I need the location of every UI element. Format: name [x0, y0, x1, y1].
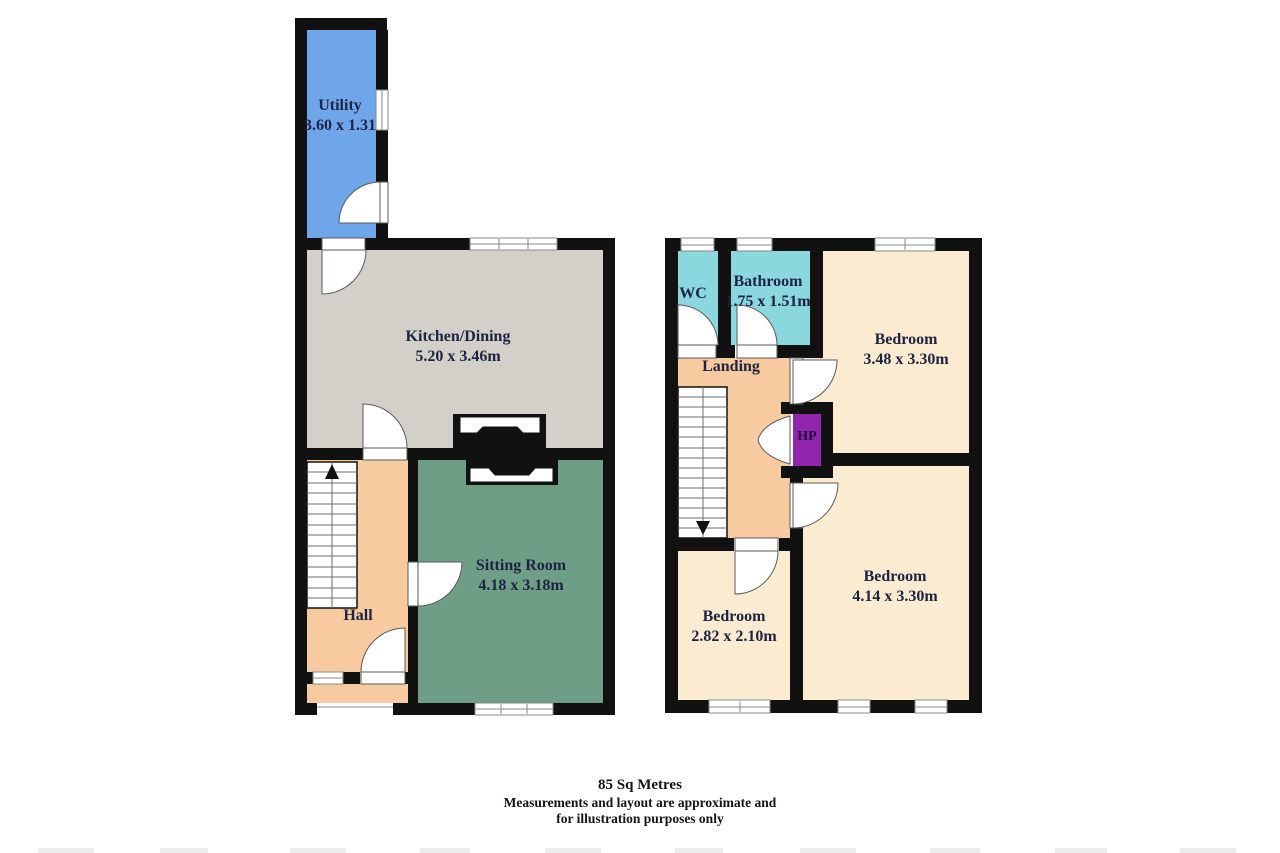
room-dims: 1.75 x 1.51m: [698, 292, 838, 312]
room-label-bedroom-back: Bedroom 4.14 x 3.30m: [795, 567, 995, 607]
door-opening: [361, 672, 405, 684]
room-dims: 4.14 x 3.30m: [795, 587, 995, 607]
room-dims: 5.20 x 3.46m: [358, 347, 558, 367]
room-label-utility: Utility 3.60 x 1.31: [295, 96, 385, 136]
photo-strip-edge: [38, 848, 1236, 853]
room-label-kitchen: Kitchen/Dining 5.20 x 3.46m: [358, 327, 558, 367]
fireplace: [453, 414, 558, 485]
room-name: Bedroom: [703, 608, 766, 625]
room-label-sitting: Sitting Room 4.18 x 3.18m: [421, 556, 621, 596]
room-name: Sitting Room: [476, 557, 566, 574]
room-label-hall: Hall: [320, 606, 396, 626]
room-dims: 3.48 x 3.30m: [806, 350, 1006, 370]
door-opening: [322, 238, 365, 250]
room-label-bedroom-front: Bedroom 3.48 x 3.30m: [806, 330, 1006, 370]
floorplan-page: Utility 3.60 x 1.31 Kitchen/Dining 5.20 …: [0, 0, 1280, 853]
room-label-bathroom: Bathroom 1.75 x 1.51m: [698, 272, 838, 312]
room-label-landing: Landing: [673, 357, 789, 377]
room-name: Bedroom: [864, 568, 927, 585]
room-name: Hall: [343, 607, 372, 624]
room-name: Utility: [318, 97, 362, 114]
room-label-bedroom-small: Bedroom 2.82 x 2.10m: [654, 607, 814, 647]
room-dims: 4.18 x 3.18m: [421, 576, 621, 596]
room-name: Landing: [702, 358, 760, 375]
door-opening: [408, 562, 418, 606]
disclaimer-line-1: Measurements and layout are approximate …: [340, 795, 940, 811]
total-area-text: 85 Sq Metres: [340, 776, 940, 795]
room-name: Bathroom: [733, 273, 802, 290]
room-name: Bedroom: [875, 331, 938, 348]
disclaimer-line-2: for illustration purposes only: [340, 811, 940, 827]
staircase-first: [678, 387, 727, 538]
footer-notes: 85 Sq Metres Measurements and layout are…: [340, 776, 940, 827]
staircase-ground: [307, 462, 357, 608]
room-label-hot-press: HP: [792, 429, 822, 445]
room-name: HP: [797, 429, 816, 444]
room-dims: 3.60 x 1.31: [295, 116, 385, 136]
floorplan-drawing: [0, 0, 1280, 853]
door-opening: [735, 538, 778, 551]
door-opening: [363, 448, 407, 460]
room-dims: 2.82 x 2.10m: [654, 627, 814, 647]
room-name: Kitchen/Dining: [406, 328, 511, 345]
